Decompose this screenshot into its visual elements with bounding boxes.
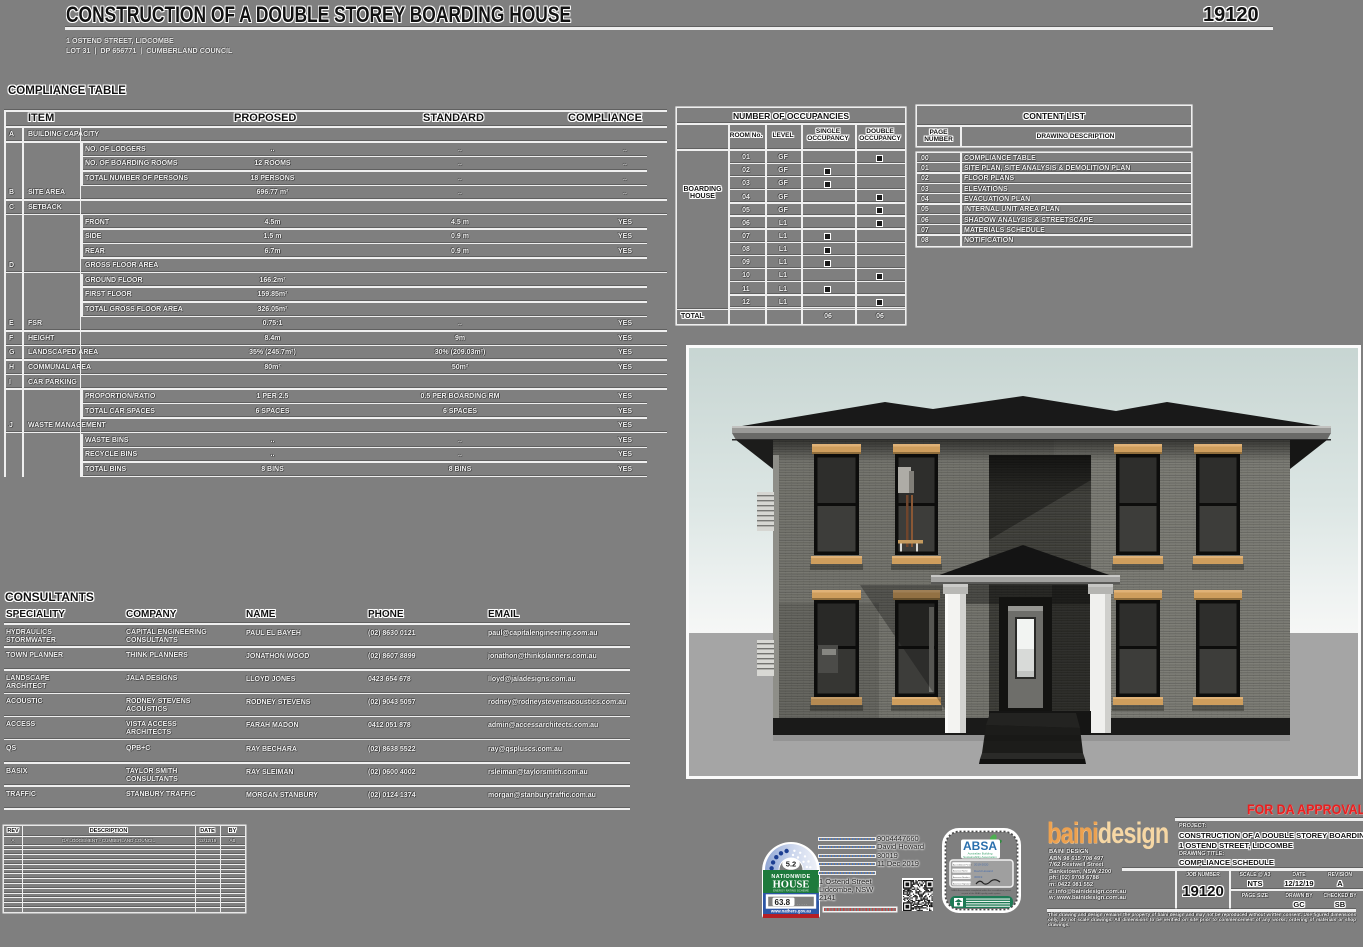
svg-text:Assessor Number: Assessor Number [953, 876, 970, 879]
svg-text:. . . . .: . . . . . [797, 901, 807, 906]
svg-text:5.2: 5.2 [786, 860, 796, 869]
svg-text:ENERGY RATING SCHEME: ENERGY RATING SCHEME [773, 889, 809, 893]
svg-text:30019: 30019 [974, 875, 983, 879]
svg-text:Assessor Signature: Assessor Signature [953, 882, 972, 885]
svg-text:63.8: 63.8 [775, 898, 791, 907]
svg-text:Accreditation Period: Accreditation Period [953, 863, 972, 866]
svg-text:Assessor Name: Assessor Name [953, 870, 969, 873]
svg-text:www.nathers.gov.au: www.nathers.gov.au [770, 909, 812, 914]
svg-text:Sustainability Association: Sustainability Association [963, 855, 997, 859]
svg-text:as part of the NFAS quality au: as part of the NFAS quality audit system [962, 892, 1001, 895]
svg-text:NFAS Assessments completed wit: NFAS Assessments completed within the ac… [951, 889, 1011, 892]
svg-text:David Howard: David Howard [974, 869, 993, 873]
svg-text:2019-2020: 2019-2020 [974, 863, 989, 867]
